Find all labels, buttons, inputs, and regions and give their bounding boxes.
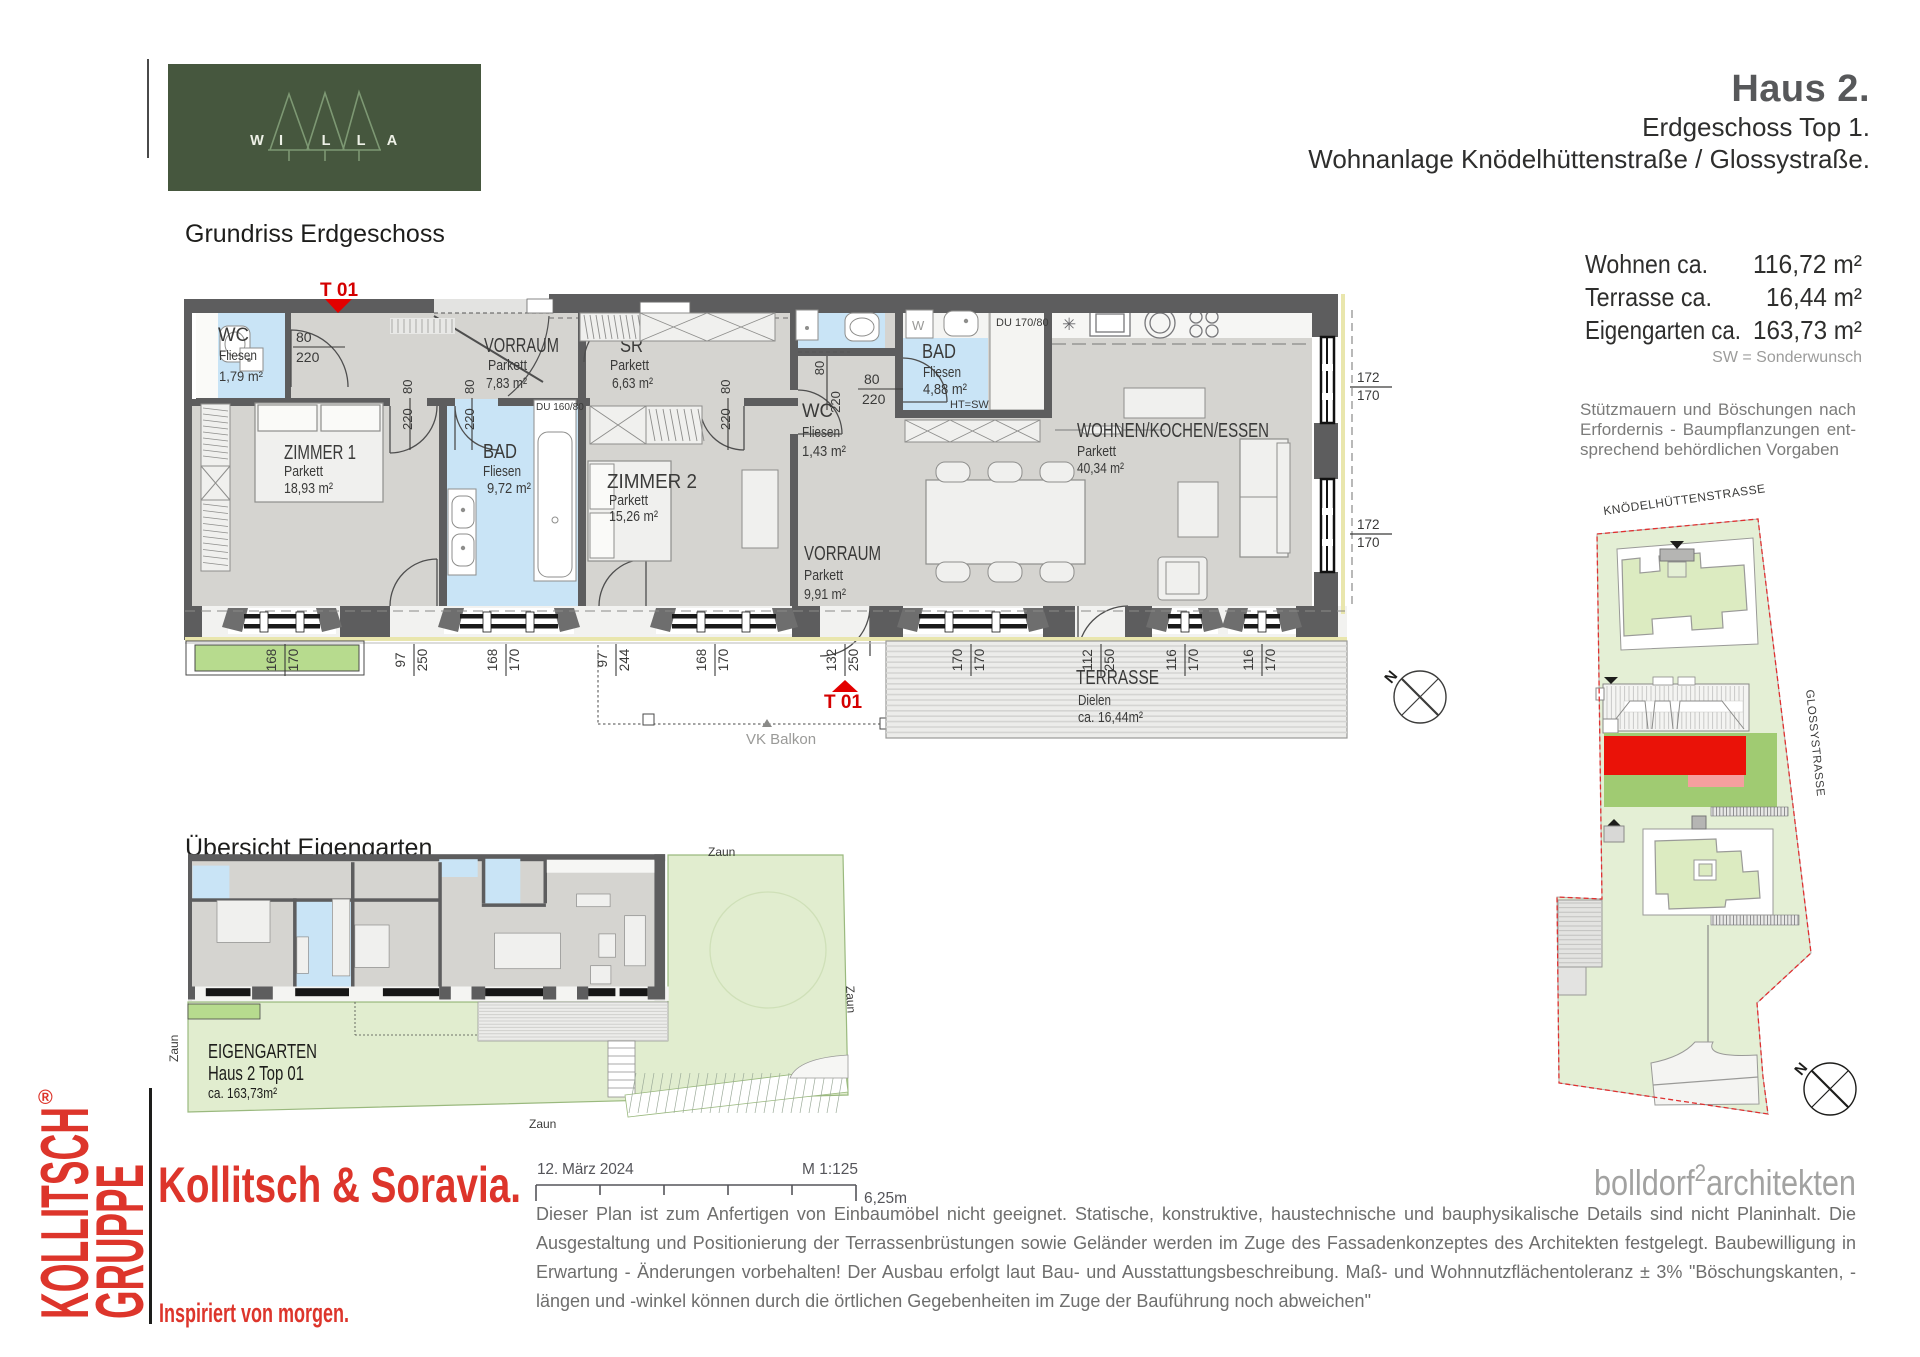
svg-text:168: 168 <box>485 649 500 672</box>
svg-text:SW = Sonderwunsch: SW = Sonderwunsch <box>1712 349 1862 366</box>
svg-text:VORRAUM: VORRAUM <box>484 335 559 357</box>
svg-text:244: 244 <box>617 648 632 671</box>
svg-text:80: 80 <box>400 380 415 394</box>
svg-text:1,43 m²: 1,43 m² <box>802 443 846 460</box>
svg-text:Kollitsch & Soravia.: Kollitsch & Soravia. <box>158 1157 521 1213</box>
svg-text:Inspiriert von morgen.: Inspiriert von morgen. <box>159 1298 349 1328</box>
svg-text:GRUPPE: GRUPPE <box>82 1164 158 1319</box>
svg-text:170: 170 <box>972 649 987 672</box>
svg-text:172: 172 <box>1357 517 1380 532</box>
svg-text:18,93 m²: 18,93 m² <box>284 480 333 497</box>
svg-text:ZIMMER 2: ZIMMER 2 <box>607 471 697 493</box>
svg-text:ZIMMER 1: ZIMMER 1 <box>284 442 356 464</box>
svg-text:Parkett: Parkett <box>488 357 528 374</box>
svg-text:170: 170 <box>716 649 731 672</box>
svg-text:170: 170 <box>1357 535 1380 550</box>
svg-text:80: 80 <box>718 380 733 394</box>
svg-text:Parkett: Parkett <box>1077 443 1117 460</box>
svg-text:250: 250 <box>846 649 861 672</box>
svg-text:132: 132 <box>824 649 839 672</box>
svg-text:16,44 m²: 16,44 m² <box>1766 282 1862 312</box>
svg-text:HT=SW: HT=SW <box>950 399 989 411</box>
svg-text:168: 168 <box>264 649 279 672</box>
svg-text:BAD: BAD <box>922 341 956 363</box>
svg-text:Parkett: Parkett <box>284 463 324 480</box>
svg-text:VORRAUM: VORRAUM <box>804 543 881 565</box>
svg-text:170: 170 <box>1357 388 1380 403</box>
svg-text:Parkett: Parkett <box>804 567 844 584</box>
svg-text:80: 80 <box>296 329 312 345</box>
svg-text:9,72 m²: 9,72 m² <box>487 480 531 497</box>
svg-text:GLOSSYSTRASSE: GLOSSYSTRASSE <box>1803 689 1826 797</box>
svg-text:WC: WC <box>218 325 249 346</box>
svg-text:bolldorf2architekten: bolldorf2architekten <box>1594 1160 1856 1203</box>
svg-text:W: W <box>912 318 925 333</box>
svg-text:Parkett: Parkett <box>609 492 649 509</box>
svg-text:170: 170 <box>286 649 301 672</box>
svg-text:220: 220 <box>296 349 320 365</box>
svg-text:Fliesen: Fliesen <box>923 364 961 381</box>
svg-text:Zaun: Zaun <box>708 845 735 859</box>
svg-text:170: 170 <box>1263 649 1278 672</box>
svg-text:168: 168 <box>694 649 709 672</box>
svg-text:250: 250 <box>415 649 430 672</box>
svg-text:170: 170 <box>507 649 522 672</box>
svg-text:Zaun: Zaun <box>167 1035 181 1062</box>
svg-text:4,88 m²: 4,88 m² <box>923 381 967 398</box>
svg-text:220: 220 <box>862 391 886 407</box>
svg-text:220: 220 <box>400 408 415 430</box>
svg-text:97: 97 <box>393 652 408 667</box>
svg-text:172: 172 <box>1357 370 1380 385</box>
svg-text:9,91 m²: 9,91 m² <box>804 586 846 603</box>
svg-text:Fliesen: Fliesen <box>483 463 521 480</box>
svg-text:Fliesen: Fliesen <box>802 424 840 441</box>
svg-text:DU 170/80: DU 170/80 <box>996 317 1049 329</box>
svg-text:KNÖDELHÜTTENSTRASSE: KNÖDELHÜTTENSTRASSE <box>1602 481 1766 518</box>
svg-text:40,34 m²: 40,34 m² <box>1077 460 1124 477</box>
svg-text:DU 160/80: DU 160/80 <box>536 402 584 413</box>
svg-text:220: 220 <box>828 391 843 413</box>
svg-text:Parkett: Parkett <box>610 357 650 374</box>
svg-text:97: 97 <box>595 652 610 667</box>
svg-text:7,83 m²: 7,83 m² <box>486 375 527 392</box>
svg-text:Zaun: Zaun <box>843 985 858 1013</box>
svg-text:170: 170 <box>950 649 965 672</box>
svg-text:Eigengarten ca.: Eigengarten ca. <box>1585 315 1741 345</box>
svg-text:ca. 16,44m²: ca. 16,44m² <box>1078 709 1143 726</box>
svg-text:250: 250 <box>1102 649 1117 672</box>
svg-text:1,79 m²: 1,79 m² <box>219 368 263 384</box>
svg-text:T 01: T 01 <box>320 280 358 301</box>
svg-text:®: ® <box>38 1087 53 1109</box>
svg-text:112: 112 <box>1080 649 1095 671</box>
svg-text:VK Balkon: VK Balkon <box>746 731 816 748</box>
svg-text:6,63 m²: 6,63 m² <box>612 375 653 392</box>
svg-text:Terrasse ca.: Terrasse ca. <box>1585 282 1712 312</box>
svg-text:163,73 m²: 163,73 m² <box>1753 315 1862 345</box>
svg-text:BAD: BAD <box>483 441 517 463</box>
svg-text:Wohnen ca.: Wohnen ca. <box>1585 249 1708 279</box>
svg-text:116: 116 <box>1241 649 1256 671</box>
svg-text:170: 170 <box>1186 649 1201 672</box>
svg-text:✳: ✳ <box>1062 315 1076 334</box>
svg-text:80: 80 <box>812 361 827 375</box>
svg-text:116: 116 <box>1164 649 1179 671</box>
svg-text:15,26 m²: 15,26 m² <box>609 508 658 525</box>
svg-text:Fliesen: Fliesen <box>219 347 257 363</box>
svg-text:220: 220 <box>718 408 733 430</box>
svg-text:80: 80 <box>864 371 880 387</box>
svg-text:80: 80 <box>462 380 477 394</box>
svg-text:T 01: T 01 <box>824 692 862 713</box>
svg-text:Dielen: Dielen <box>1078 692 1111 709</box>
svg-text:220: 220 <box>462 408 477 430</box>
svg-text:116,72 m²: 116,72 m² <box>1753 249 1862 279</box>
